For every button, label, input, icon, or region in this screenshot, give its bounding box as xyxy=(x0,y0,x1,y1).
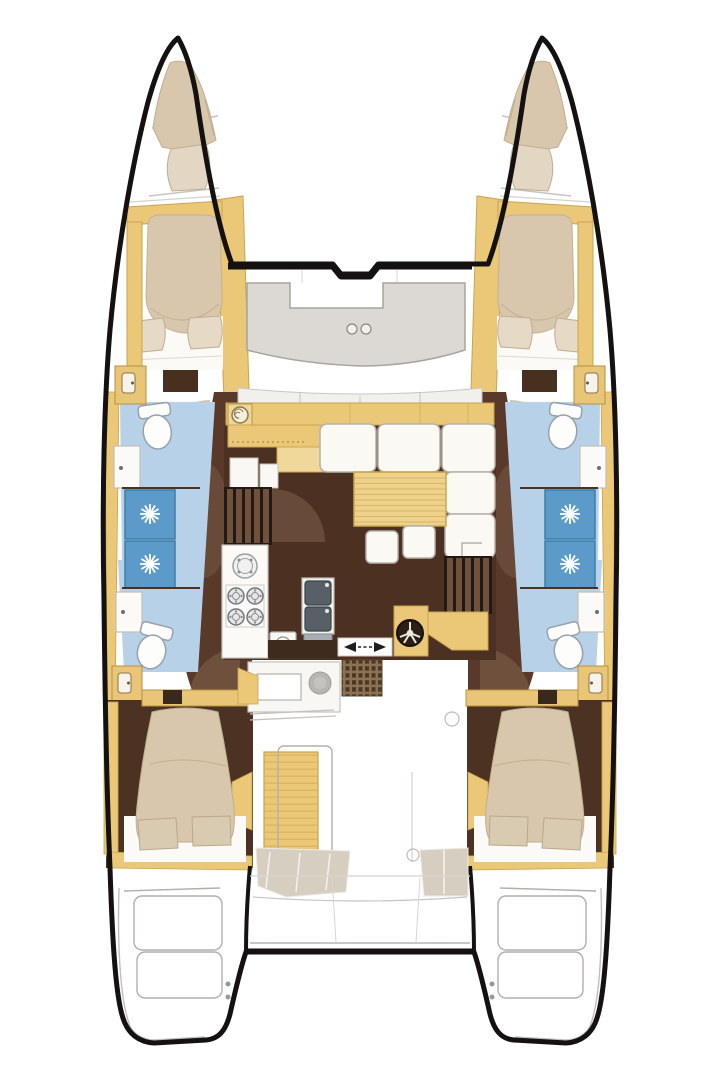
saloon xyxy=(222,403,496,660)
steps-starboard xyxy=(444,556,492,614)
pillow xyxy=(138,818,178,850)
floor-plan-stage xyxy=(0,0,720,1080)
round-sink xyxy=(233,554,257,578)
pillow xyxy=(192,816,231,846)
fridge-top xyxy=(230,458,258,490)
wet-bar xyxy=(248,662,340,720)
double-sink xyxy=(302,578,334,634)
catamaran-floor-plan xyxy=(0,0,720,1080)
aft-cabin xyxy=(104,690,254,870)
forward-cabin-mattress xyxy=(146,215,222,333)
sliding-door xyxy=(338,638,392,656)
companionway-mat xyxy=(342,660,382,696)
coachroof-band xyxy=(226,403,494,426)
wardrobe-forward xyxy=(115,366,146,404)
vanity-sink xyxy=(116,592,142,632)
forward-cabin xyxy=(127,215,223,392)
saloon-table xyxy=(354,472,446,526)
forward-head xyxy=(114,402,215,560)
pillow xyxy=(188,316,223,349)
aft-head xyxy=(116,541,205,672)
wardrobe-aft xyxy=(112,666,142,702)
vanity-sink xyxy=(114,446,140,488)
locker-door-icon xyxy=(118,673,131,693)
steps-port xyxy=(224,487,272,545)
helm-station xyxy=(394,606,428,656)
locker-door-icon xyxy=(122,373,135,393)
fridge-top xyxy=(260,464,278,488)
